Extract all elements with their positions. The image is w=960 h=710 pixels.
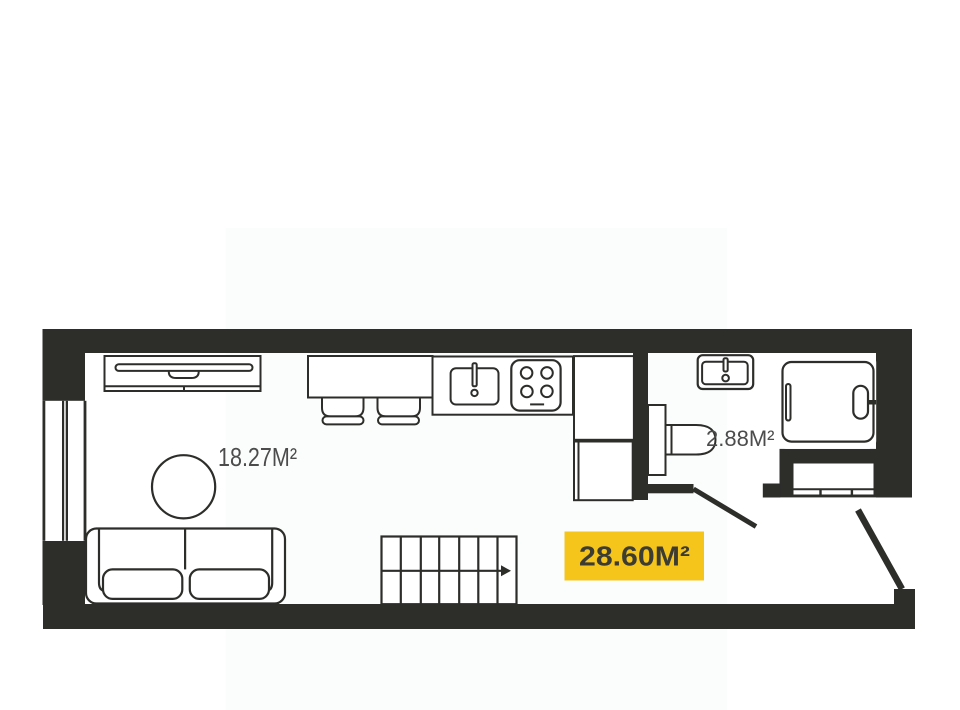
svg-text:18.27M²: 18.27M² bbox=[218, 444, 297, 472]
svg-text:2.88M²: 2.88M² bbox=[706, 426, 775, 451]
svg-text:28.60M²: 28.60M² bbox=[579, 541, 690, 572]
